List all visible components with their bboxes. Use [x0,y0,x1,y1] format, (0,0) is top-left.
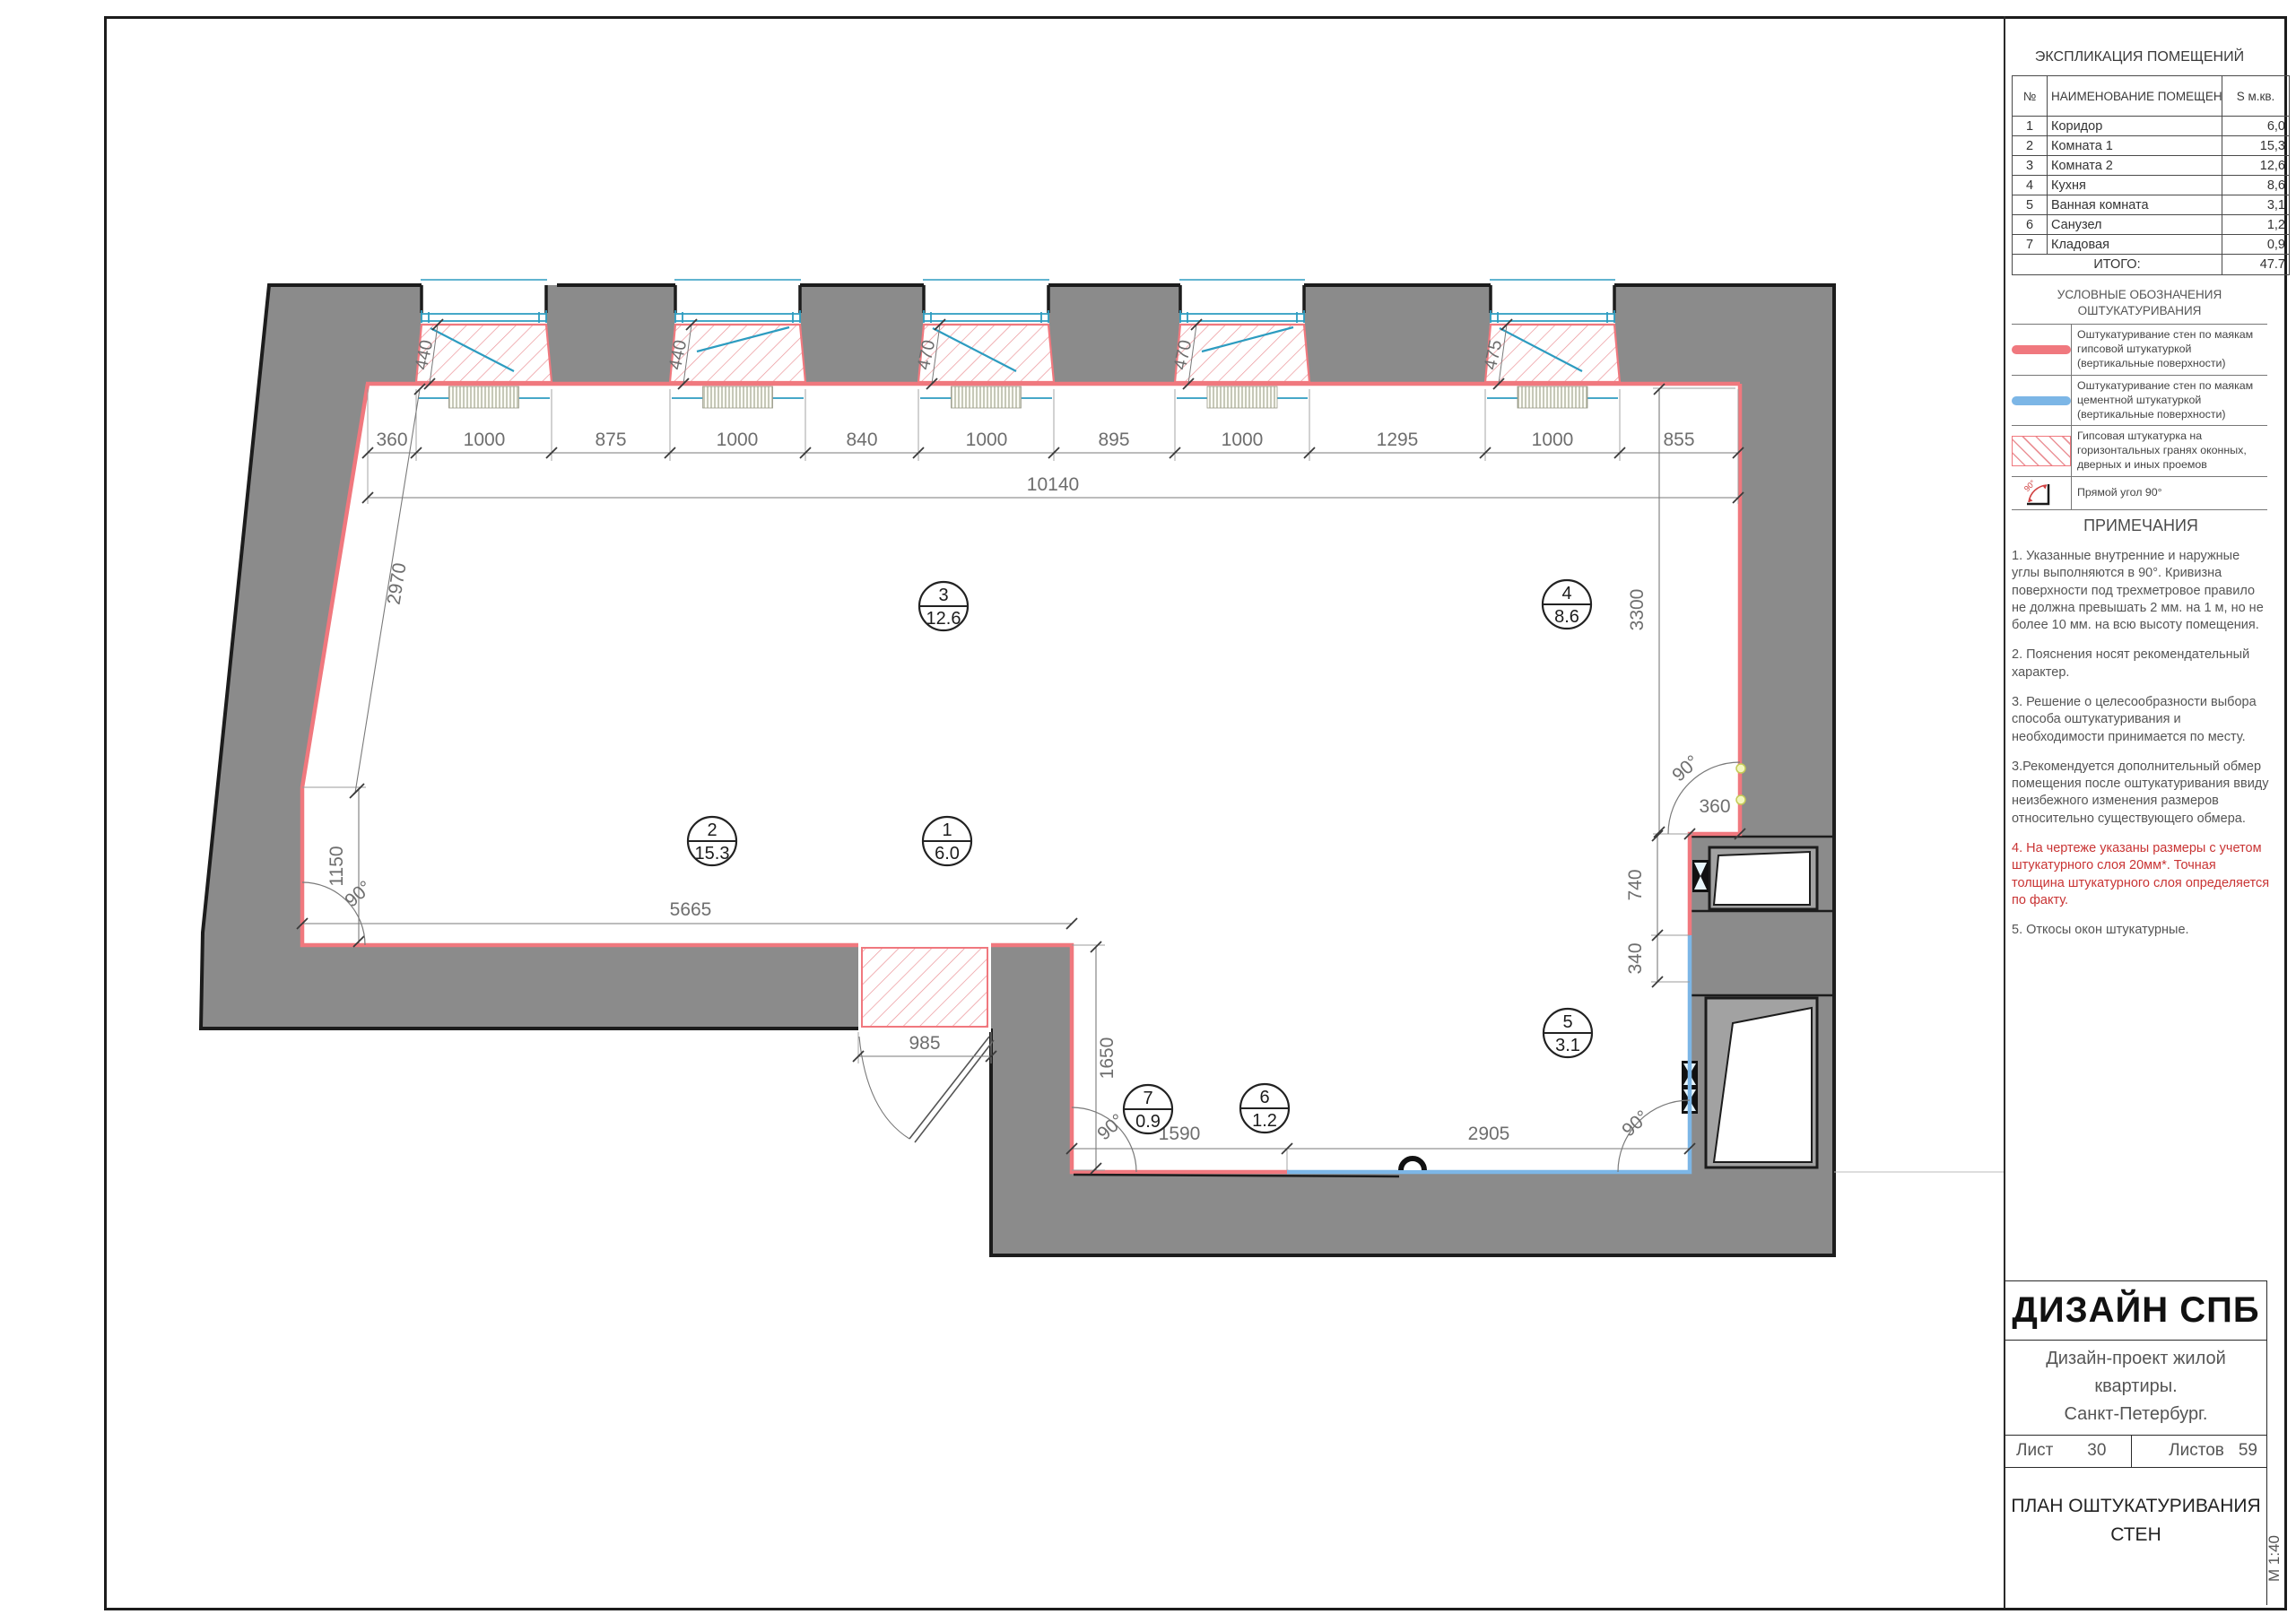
legend-title: УСЛОВНЫЕ ОБОЗНАЧЕНИЯ ОШТУКАТУРИВАНИЯ [2012,285,2267,324]
sheet-border [104,16,2287,1610]
legend-row-cement: Оштукатуривание стен по маякам цементной… [2012,375,2267,425]
drawing-sheet: 3601000875100084010008951000129510008551… [0,0,2296,1623]
notes-title: ПРИМЕЧАНИЯ [2012,516,2270,535]
sheets-number: 59 [2239,1441,2257,1461]
titleblock-line [2005,1280,2266,1281]
note-paragraph: 1. Указанные внутренние и наружные углы … [2012,548,2270,634]
hatch-swatch-icon [2012,436,2071,466]
titleblock-line [2005,1340,2266,1341]
table-row: 1Коридор6,0 [2013,117,2290,136]
gypsum-line-icon [2012,345,2071,354]
col-header-name: НАИМЕНОВАНИЕ ПОМЕЩЕНИЯ [2048,76,2222,117]
sheet-numbers-row: Лист 30 Листов 59 [2005,1435,2266,1467]
table-cell: 4 [2013,176,2048,195]
legend-text: Прямой угол 90° [2071,477,2267,509]
legend-row-angle: 90° Прямой угол 90° [2012,476,2267,510]
col-header-area: S м.кв. [2222,76,2290,117]
project-description: Дизайн-проект жилой квартиры. Санкт-Пете… [2005,1345,2266,1428]
note-paragraph: 3. Решение о целесообразности выбора спо… [2012,694,2270,746]
table-cell: 3,1 [2222,195,2290,215]
table-cell: 5 [2013,195,2048,215]
table-cell: 15,3 [2222,136,2290,156]
note-paragraph: 4. На чертеже указаны размеры с учетом ш… [2012,840,2270,909]
col-header-num: № [2013,76,2048,117]
titleblock-line [2005,1467,2266,1468]
company-name: ДИЗАЙН СПБ [2005,1284,2266,1336]
svg-text:90°: 90° [2022,478,2038,493]
sheet-number: 30 [2087,1441,2106,1461]
legend-text: Оштукатуривание стен по маякам гипсовой … [2071,325,2267,375]
table-cell: 6,0 [2222,117,2290,136]
table-cell: 1,2 [2222,215,2290,235]
table-cell: Коридор [2048,117,2222,136]
legend-row-hatch: Гипсовая штукатурка на горизонтальных гр… [2012,425,2267,475]
total-value: 47.7 [2222,255,2290,275]
table-cell: 1 [2013,117,2048,136]
sheet-label: Лист [2005,1441,2053,1461]
table-cell: 6 [2013,215,2048,235]
note-paragraph: 5. Откосы окон штукатурные. [2012,922,2270,939]
legend-row-gypsum: Оштукатуривание стен по маякам гипсовой … [2012,324,2267,375]
table-cell: 0,9 [2222,235,2290,255]
cement-line-icon [2012,396,2071,405]
sheets-label: Листов [2169,1441,2224,1461]
explication-title: ЭКСПЛИКАЦИЯ ПОМЕЩЕНИЙ [2012,39,2267,75]
table-cell: 7 [2013,235,2048,255]
table-row: 5Ванная комната3,1 [2013,195,2290,215]
table-row: 3Комната 212,6 [2013,156,2290,176]
table-cell: Кухня [2048,176,2222,195]
note-paragraph: 3.Рекомендуется дополнительный обмер пом… [2012,759,2270,828]
legend-text: Оштукатуривание стен по маякам цементной… [2071,376,2267,425]
drawing-title: ПЛАН ОШТУКАТУРИВАНИЯ СТЕН [2005,1492,2266,1549]
table-cell: 8,6 [2222,176,2290,195]
scale-label: М 1:40 [2266,1514,2283,1603]
legend-text: Гипсовая штукатурка на горизонтальных гр… [2071,426,2267,475]
table-cell: Кладовая [2048,235,2222,255]
explication-table: ЭКСПЛИКАЦИЯ ПОМЕЩЕНИЙ № НАИМЕНОВАНИЕ ПОМ… [2012,39,2267,275]
table-cell: Санузел [2048,215,2222,235]
total-label: ИТОГО: [2013,255,2222,275]
note-paragraph: 2. Пояснения носят рекомендательный хара… [2012,647,2270,681]
right-angle-icon: 90° [2022,477,2061,509]
table-row: 4Кухня8,6 [2013,176,2290,195]
table-cell: Комната 2 [2048,156,2222,176]
table-cell: Комната 1 [2048,136,2222,156]
table-row: 6Санузел1,2 [2013,215,2290,235]
table-cell: Ванная комната [2048,195,2222,215]
table-cell: 12,6 [2222,156,2290,176]
notes-block: ПРИМЕЧАНИЯ 1. Указанные внутренние и нар… [2012,516,2270,951]
table-row: 7Кладовая0,9 [2013,235,2290,255]
table-cell: 3 [2013,156,2048,176]
table-row: 2Комната 115,3 [2013,136,2290,156]
plaster-legend: УСЛОВНЫЕ ОБОЗНАЧЕНИЯ ОШТУКАТУРИВАНИЯ Ошт… [2012,285,2267,510]
table-cell: 2 [2013,136,2048,156]
